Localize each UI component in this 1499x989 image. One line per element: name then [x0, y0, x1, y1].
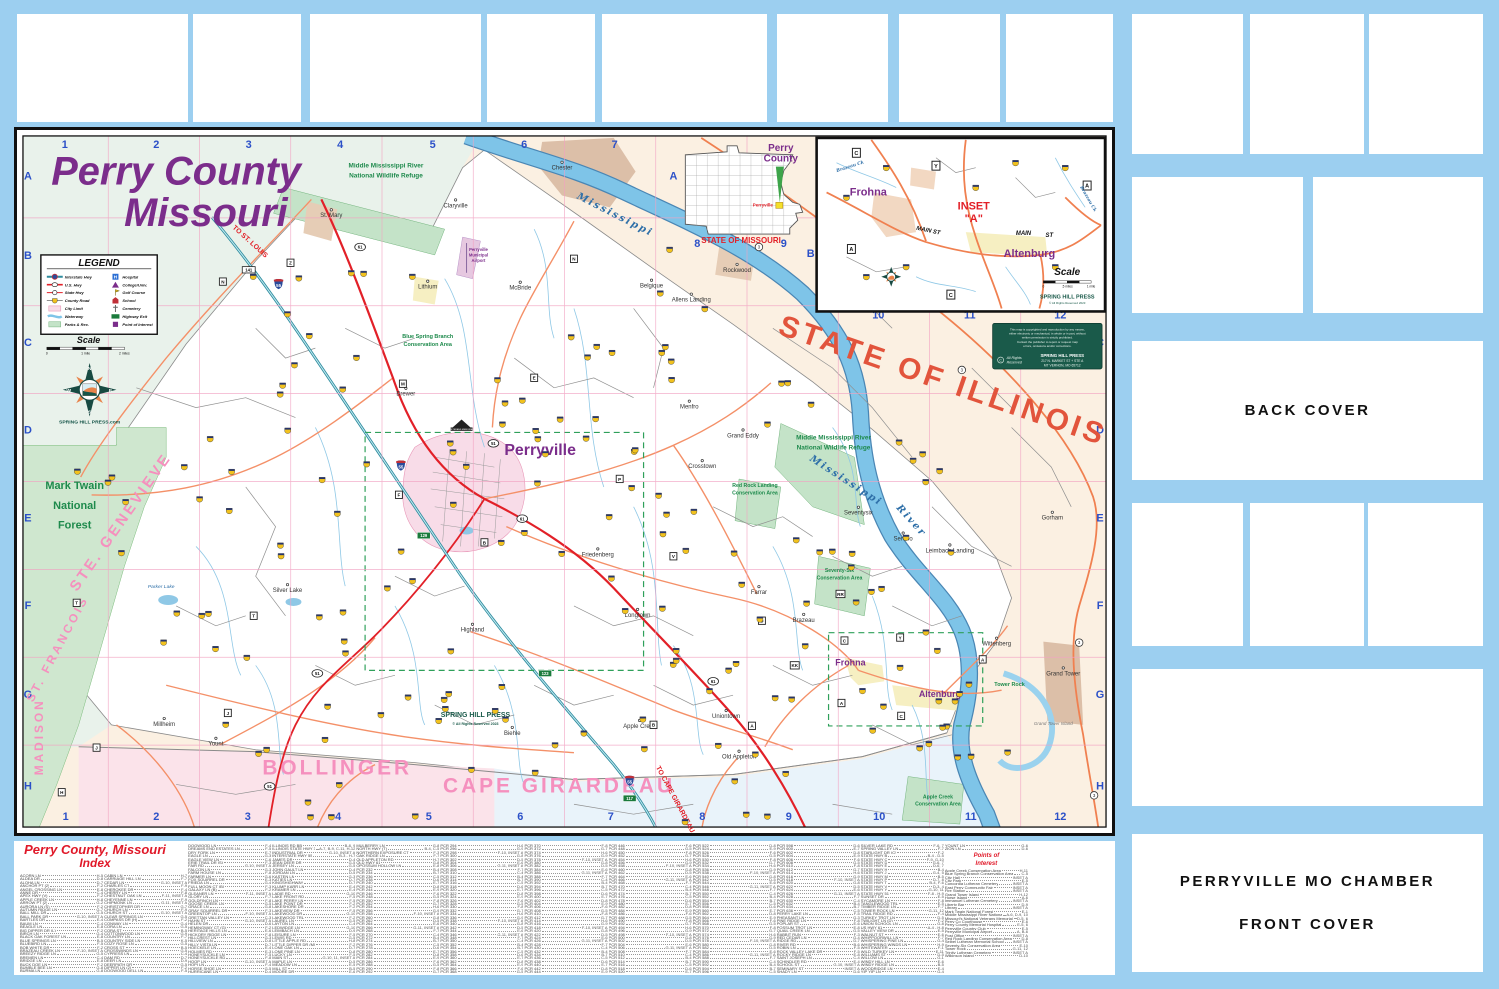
lettered-route-marker: P — [616, 475, 623, 482]
lettered-route-marker: C — [898, 712, 905, 719]
area-label: National Wildlife Refuge — [797, 444, 871, 451]
town-label: Uniontown — [712, 714, 740, 720]
county-road-shield — [343, 651, 349, 657]
town-dot — [561, 161, 563, 163]
inset-scale-tick: 1 mile — [1087, 285, 1096, 289]
town-label: Old Appleton — [722, 755, 756, 761]
grid-row-label: B — [807, 248, 815, 260]
lettered-route-label: Z — [289, 261, 292, 266]
county-road-shield — [640, 717, 646, 723]
locator-state-label: STATE OF MISSOURI — [701, 236, 781, 245]
county-road-shield — [581, 731, 587, 737]
route-marker: 61 — [355, 243, 366, 251]
county-road-shield — [957, 691, 963, 697]
legend-item-label: U.S. Hwy — [65, 282, 83, 287]
county-road-shield — [521, 530, 527, 536]
index-entry: Wilkinson IslandD-10 — [945, 954, 1028, 957]
town-label: Longtown — [625, 613, 651, 619]
lettered-route-marker: J — [224, 709, 231, 716]
county-road-shield — [659, 606, 665, 612]
exit-number: 117 — [626, 796, 633, 801]
county-road-shield — [336, 782, 342, 788]
legend-item-label: College/Univ. — [122, 282, 147, 287]
grid-col-label: 9 — [786, 811, 792, 823]
index-column: ILLINOIS RD BBB-8, 9ILLINOIS STATE HWY 3… — [272, 844, 355, 975]
county-road-shield — [702, 306, 708, 312]
town-label: Seventysix — [844, 511, 873, 517]
county-road-shield — [765, 422, 771, 428]
inset-copyright: © All Rights Reserved 2023 — [1049, 301, 1086, 305]
county-road-shield — [305, 800, 311, 806]
county-road-shield — [316, 615, 322, 621]
town-dot — [636, 608, 638, 610]
county-road-shield — [683, 548, 689, 554]
county-road-shield — [341, 639, 347, 645]
area-label: Apple Creek — [923, 794, 953, 800]
county-road-shield — [870, 728, 876, 734]
county-road-shield — [804, 601, 810, 607]
county-road-shield — [325, 704, 331, 710]
grid-row-label: F — [1097, 600, 1104, 612]
county-road-shield — [673, 658, 679, 664]
route-marker: 51 — [264, 783, 275, 791]
publisher-addr2: MT VERNON, MO 65712 — [1044, 363, 1081, 367]
exit-number: 123 — [542, 671, 550, 676]
town-dot — [597, 548, 599, 550]
county-road-shield — [1005, 750, 1011, 756]
locator-county-line1: Perry — [768, 143, 794, 154]
county-road-shield — [161, 640, 167, 646]
county-road-shield — [817, 550, 823, 556]
grid-col-label: 4 — [337, 139, 343, 151]
front-cover-label: FRONT COVER — [1239, 916, 1376, 933]
county-road-shield — [542, 451, 548, 457]
county-road-shield — [868, 589, 874, 595]
county-road-shield — [920, 452, 926, 458]
index-column — [1029, 844, 1112, 975]
county-road-shield — [903, 264, 909, 270]
ad-placeholder-box — [1250, 14, 1364, 154]
front-cover-chamber-label: PERRYVILLE MO CHAMBER — [1180, 873, 1435, 890]
index-column: PCR 370F-8PCR 372G-7PCR 374H-6PCR 376G-9… — [524, 844, 607, 975]
lettered-route-label: P — [618, 477, 621, 482]
town-label: Allens Landing — [672, 298, 711, 304]
town-dot — [650, 279, 652, 281]
legend-item-label: Parks & Rec. — [65, 322, 89, 327]
town-label: Brazeau — [793, 618, 815, 624]
rights-line2: Reserved — [1007, 361, 1023, 365]
village-label: Altenburg — [919, 689, 961, 699]
grid-col-label: 6 — [517, 811, 523, 823]
town-dot — [690, 293, 692, 295]
lettered-route-marker: B — [481, 539, 488, 546]
county-road-shield — [691, 509, 697, 515]
town-dot — [725, 709, 727, 711]
legend-item-label: Waterway — [65, 314, 84, 319]
inset-publisher: SPRING HILL PRESS — [1040, 295, 1095, 301]
index-poi-header: Points of — [945, 853, 1028, 860]
town-label: Yount — [208, 742, 223, 748]
county-road-shield — [123, 499, 129, 505]
county-road-shield — [849, 551, 855, 557]
county-road-shield — [361, 271, 367, 277]
route-marker: 61 — [517, 515, 528, 523]
lettered-route-label: N — [572, 257, 575, 262]
town-dot — [902, 532, 904, 534]
county-road-shield — [968, 754, 974, 760]
county-road-shield — [897, 665, 903, 671]
illinois-town-label: Grand Tower — [1046, 671, 1080, 677]
poi-label: Tower Rock — [994, 682, 1026, 688]
county-road-shield — [1013, 160, 1019, 166]
grid-row-label: D — [24, 424, 32, 436]
veterans-memorial-label: VETERANS MEMORIAL — [450, 428, 475, 431]
lettered-route-label: F — [398, 493, 401, 498]
county-road-shield — [213, 646, 219, 652]
town-dot — [427, 280, 429, 282]
county-road-shield — [552, 743, 558, 749]
area-label: Conservation Area — [404, 342, 453, 348]
map-canvas: Perry CountyMissouri11223344556677889910… — [17, 130, 1112, 833]
county-road-shield — [880, 704, 886, 710]
index-column: DOGWOOD LNF-4DREAMS END ESTATES LNF-5DRY… — [188, 844, 271, 975]
county-road-shield — [772, 695, 778, 701]
county-road-shield — [291, 363, 297, 369]
county-road-shield — [940, 725, 946, 731]
lettered-route-label: KK — [791, 663, 798, 668]
county-road-shield — [593, 416, 599, 422]
county-road-shield — [743, 812, 749, 818]
county-road-shield — [848, 565, 854, 571]
lettered-route-label: V — [672, 554, 675, 559]
ad-placeholder-box — [487, 14, 595, 122]
county-road-shield — [879, 586, 885, 592]
index-poi-header: Interest — [945, 861, 1028, 868]
county-road-shield — [264, 747, 270, 753]
grid-row-label: H — [1096, 780, 1104, 792]
town-label: Millheim — [153, 722, 175, 728]
interstate-number: 55 — [276, 283, 281, 288]
county-road-shield — [923, 479, 929, 485]
index-entry: MOORE DRE-6 — [272, 970, 355, 973]
county-road-shield — [903, 535, 909, 541]
highway-exit-marker: 129 — [417, 532, 430, 538]
town-label: Crosstown — [688, 464, 716, 470]
county-road-shield — [583, 436, 589, 442]
grid-col-label: 2 — [153, 811, 159, 823]
town-label: Biehle — [504, 731, 521, 737]
county-road-shield — [410, 578, 416, 584]
grid-col-label: 9 — [781, 238, 787, 250]
grid-col-label: 5 — [426, 811, 432, 823]
route-marker: 51 — [488, 440, 499, 448]
county-road-shield — [657, 291, 663, 297]
county-road-shield — [594, 344, 600, 350]
county-road-shield — [783, 771, 789, 777]
county-road-shield — [917, 746, 923, 752]
lettered-route-marker: A — [979, 656, 986, 663]
county-road-shield — [668, 359, 674, 365]
county-road-shield — [785, 380, 791, 386]
county-road-shield — [468, 767, 474, 773]
index-column: SILVER LAKE RDF-6, 7SPRING VALLEY LNF-7S… — [861, 844, 944, 975]
lettered-route-marker: V — [670, 553, 677, 560]
county-road-shield — [707, 688, 713, 694]
area-label: Blue Spring Branch — [402, 334, 453, 340]
county-road-shield — [664, 512, 670, 518]
exit-number: 129 — [420, 533, 428, 538]
county-road-shield — [667, 247, 673, 253]
grid-row-label: E — [1096, 513, 1103, 525]
county-road-shield — [450, 450, 456, 456]
county-road-shield — [739, 582, 745, 588]
lettered-route-label: M — [401, 382, 405, 387]
legend-item-label: Point of Interest — [122, 322, 153, 327]
grid-row-label: G — [1096, 689, 1104, 701]
county-road-shield — [585, 355, 591, 361]
map-proof-sheet: BACK COVER PERRYVILLE MO CHAMBER FRONT C… — [0, 0, 1499, 989]
county-road-shield — [955, 755, 961, 761]
town-label: Silver Lake — [273, 588, 303, 594]
county-road-shield — [559, 551, 565, 557]
rights-line1: All Rights — [1006, 356, 1022, 360]
lettered-route-label: E — [533, 376, 536, 381]
inset-scale-tick: .5 miles — [1062, 285, 1073, 289]
area-label: Perryville — [469, 247, 488, 252]
county-road-shield — [334, 511, 340, 517]
town-dot — [454, 199, 456, 201]
county-road-shield — [378, 712, 384, 718]
lettered-route-marker: N — [570, 255, 577, 262]
inset-route-letter: A — [1085, 184, 1089, 190]
grid-row-label: E — [24, 513, 31, 525]
county-road-shield — [277, 543, 283, 549]
area-label: Conservation Area — [817, 576, 863, 582]
county-road-shield — [656, 493, 662, 499]
county-road-shield — [606, 514, 612, 520]
legend-title: LEGEND — [78, 258, 119, 269]
island-label: Grand Tower Island — [1034, 721, 1073, 726]
county-road-shield — [948, 550, 954, 556]
county-road-shield — [250, 274, 256, 280]
county-road-shield — [463, 464, 469, 470]
county-road-shield — [109, 475, 115, 481]
grid-col-label: 7 — [612, 139, 618, 151]
county-road-shield — [863, 274, 869, 280]
ad-placeholder-box — [1369, 14, 1483, 154]
county-road-shield — [199, 613, 205, 619]
county-road-shield — [118, 550, 124, 556]
county-road-shield — [923, 630, 929, 636]
area-label: Municipal — [469, 252, 488, 257]
county-road-shield — [256, 751, 262, 757]
county-road-shield — [384, 586, 390, 592]
county-road-shield — [934, 648, 940, 654]
town-label: Belgique — [640, 284, 664, 290]
county-road-shield — [364, 462, 370, 468]
index-title: Perry County, Missouri Index — [20, 843, 170, 871]
area-label: © All Rights Reserved 2023 — [452, 722, 498, 726]
ad-placeholder-box — [1132, 177, 1303, 313]
legend-item-label: Hospital — [122, 274, 139, 279]
grid-col-label: 5 — [430, 139, 436, 151]
county-road-shield — [532, 770, 538, 776]
county-road-shield — [715, 743, 721, 749]
county-road-shield — [448, 649, 454, 655]
lettered-route-marker: E — [531, 374, 538, 381]
county-road-shield — [181, 464, 187, 470]
index-column: PCR 598D-6PCR 600E-7PCR 602D-8PCR 604E-9… — [777, 844, 860, 975]
index-columns: ACORN LNH-5ALDEA DRD-8ALOHA LND-7ANCHOR … — [20, 844, 1113, 975]
county-road-shield — [207, 436, 213, 442]
lettered-route-marker: J — [93, 744, 100, 751]
index-entry: PCR 292G-7 — [356, 970, 439, 973]
town-dot — [736, 263, 738, 265]
us-route-number: 51 — [315, 671, 320, 676]
route-marker: 3 — [958, 366, 966, 374]
lettered-route-label: N — [221, 279, 224, 284]
county-road-shield — [244, 655, 250, 661]
street-index-panel: Perry County, Missouri Index ACORN LNH-5… — [14, 841, 1115, 975]
county-road-shield — [853, 600, 859, 606]
back-cover-panel: BACK COVER — [1132, 341, 1483, 480]
lettered-route-marker: N — [219, 278, 226, 285]
county-road-shield — [752, 752, 758, 758]
legend-item-label: City Limit — [65, 306, 84, 311]
locator-city-label: Perryville — [753, 202, 774, 207]
legend-box: LEGENDInterstate HwyU.S. HwyState HwyCou… — [41, 255, 157, 334]
town-dot — [1062, 667, 1064, 669]
inset-altenburg-label: Altenburg — [1004, 248, 1056, 260]
lettered-route-marker: Y — [897, 634, 904, 641]
legend-item-label: Interstate Hwy — [65, 274, 93, 279]
town-label: St. Mary — [320, 213, 342, 219]
legend-item-label: State Hwy — [65, 290, 85, 295]
legend-item-label: Golf Course — [122, 290, 146, 295]
grid-row-label: F — [25, 600, 32, 612]
scale-tick: 1 mile — [81, 352, 90, 356]
illinois-town-label: Rockwood — [723, 268, 751, 274]
town-dot — [738, 750, 740, 752]
grid-col-label: 4 — [335, 811, 341, 823]
county-road-shield — [896, 440, 902, 446]
county-road-shield — [557, 417, 563, 423]
compass-caption: SPRING HILL PRESS.com — [59, 420, 121, 426]
county-road-shield — [502, 401, 508, 407]
lettered-route-marker: F — [395, 491, 402, 498]
area-label: SPRING HILL PRESS — [441, 712, 511, 719]
town-dot — [742, 429, 744, 431]
city-label: Perryville — [504, 442, 576, 459]
legend-item-label: Highway Exit — [122, 314, 147, 319]
index-column: PCR 294H-6PCR 296G-9PCR 298F-10, INSET A… — [440, 844, 523, 975]
grid-col-label: 1 — [63, 811, 69, 823]
county-road-shield — [398, 549, 404, 555]
publisher-name: SPRING HILL PRESS — [1040, 353, 1084, 358]
town-label: Highland — [461, 628, 484, 634]
county-road-shield — [973, 185, 979, 191]
inset-scale-tick: 0 — [1042, 285, 1044, 289]
lettered-route-marker: KK — [790, 662, 799, 669]
area-label: Red Rock Landing — [732, 483, 777, 489]
inset-route-letter: C — [854, 151, 858, 157]
county-road-shield — [340, 387, 346, 393]
interstate-number: 55 — [398, 464, 403, 469]
county-road-shield — [757, 617, 763, 623]
county-road-shield — [277, 392, 283, 398]
route-marker: 141 — [242, 267, 255, 273]
county-road-shield — [499, 422, 505, 428]
inset-route-letter: A — [849, 247, 853, 253]
index-entry: BURMA LNG-8 — [20, 969, 103, 972]
grid-col-label: 12 — [1054, 811, 1066, 823]
county-road-shield — [568, 335, 574, 341]
county-road-shield — [74, 469, 80, 475]
highway-exit-marker: 117 — [623, 795, 636, 801]
publisher-addr1: 217 N. MARKET ST + STE A — [1041, 359, 1084, 363]
locator-county-line2: County — [764, 154, 799, 165]
county-road-shield — [319, 477, 325, 483]
index-entry: SHADY LND-6 — [777, 970, 860, 973]
town-dot — [163, 717, 165, 719]
county-road-shield — [205, 611, 211, 617]
index-entry: YIP YIP LNG-4 — [861, 970, 944, 973]
lettered-route-marker: A — [838, 699, 845, 706]
county-road-shield — [808, 402, 814, 408]
county-road-shield — [910, 458, 916, 464]
route-marker: 61 — [708, 678, 719, 686]
town-dot — [519, 281, 521, 283]
grid-row-label: H — [24, 780, 32, 792]
lake-label: Parker Lake — [148, 584, 175, 590]
ad-placeholder-box — [602, 14, 767, 122]
lettered-route-marker: Z — [287, 259, 294, 266]
back-cover-label: BACK COVER — [1245, 402, 1371, 419]
index-entry: PCR 368G-5 — [440, 970, 523, 973]
town-dot — [286, 583, 288, 585]
lettered-route-label: T — [75, 601, 78, 606]
county-road-shield — [229, 469, 235, 475]
index-entry: PCR 520E-7 — [609, 970, 692, 973]
area-label: Conservation Area — [915, 802, 961, 808]
us-route-number: 61 — [358, 245, 363, 250]
ad-placeholder-box — [193, 14, 301, 122]
county-road-shield — [285, 428, 291, 434]
inset-route-letter: C — [949, 293, 953, 299]
county-road-shield — [936, 699, 942, 705]
county-road-shield — [732, 779, 738, 785]
grid-col-label: 8 — [694, 238, 700, 250]
route-marker: 51 — [312, 670, 323, 678]
county-name-label: BOLLINGER — [262, 757, 412, 780]
county-road-shield — [793, 538, 799, 544]
area-label: Airport — [472, 258, 486, 263]
front-cover-panel: PERRYVILLE MO CHAMBER FRONT COVER — [1132, 834, 1483, 972]
grid-col-label: 8 — [699, 811, 705, 823]
town-label: Farrar — [751, 590, 767, 596]
county-road-shield — [353, 355, 359, 361]
county-road-shield — [779, 381, 785, 387]
county-road-shield — [731, 551, 737, 557]
county-road-shield — [632, 447, 638, 453]
county-road-shield — [789, 697, 795, 703]
area-label: Conservation Area — [732, 490, 778, 496]
county-road-shield — [278, 553, 284, 559]
grid-row-label: B — [24, 250, 32, 262]
town-label: McBride — [509, 286, 532, 292]
highway-exit-marker: 123 — [539, 670, 552, 676]
copyright-box: This map is copyrighted and reproduction… — [993, 323, 1102, 369]
